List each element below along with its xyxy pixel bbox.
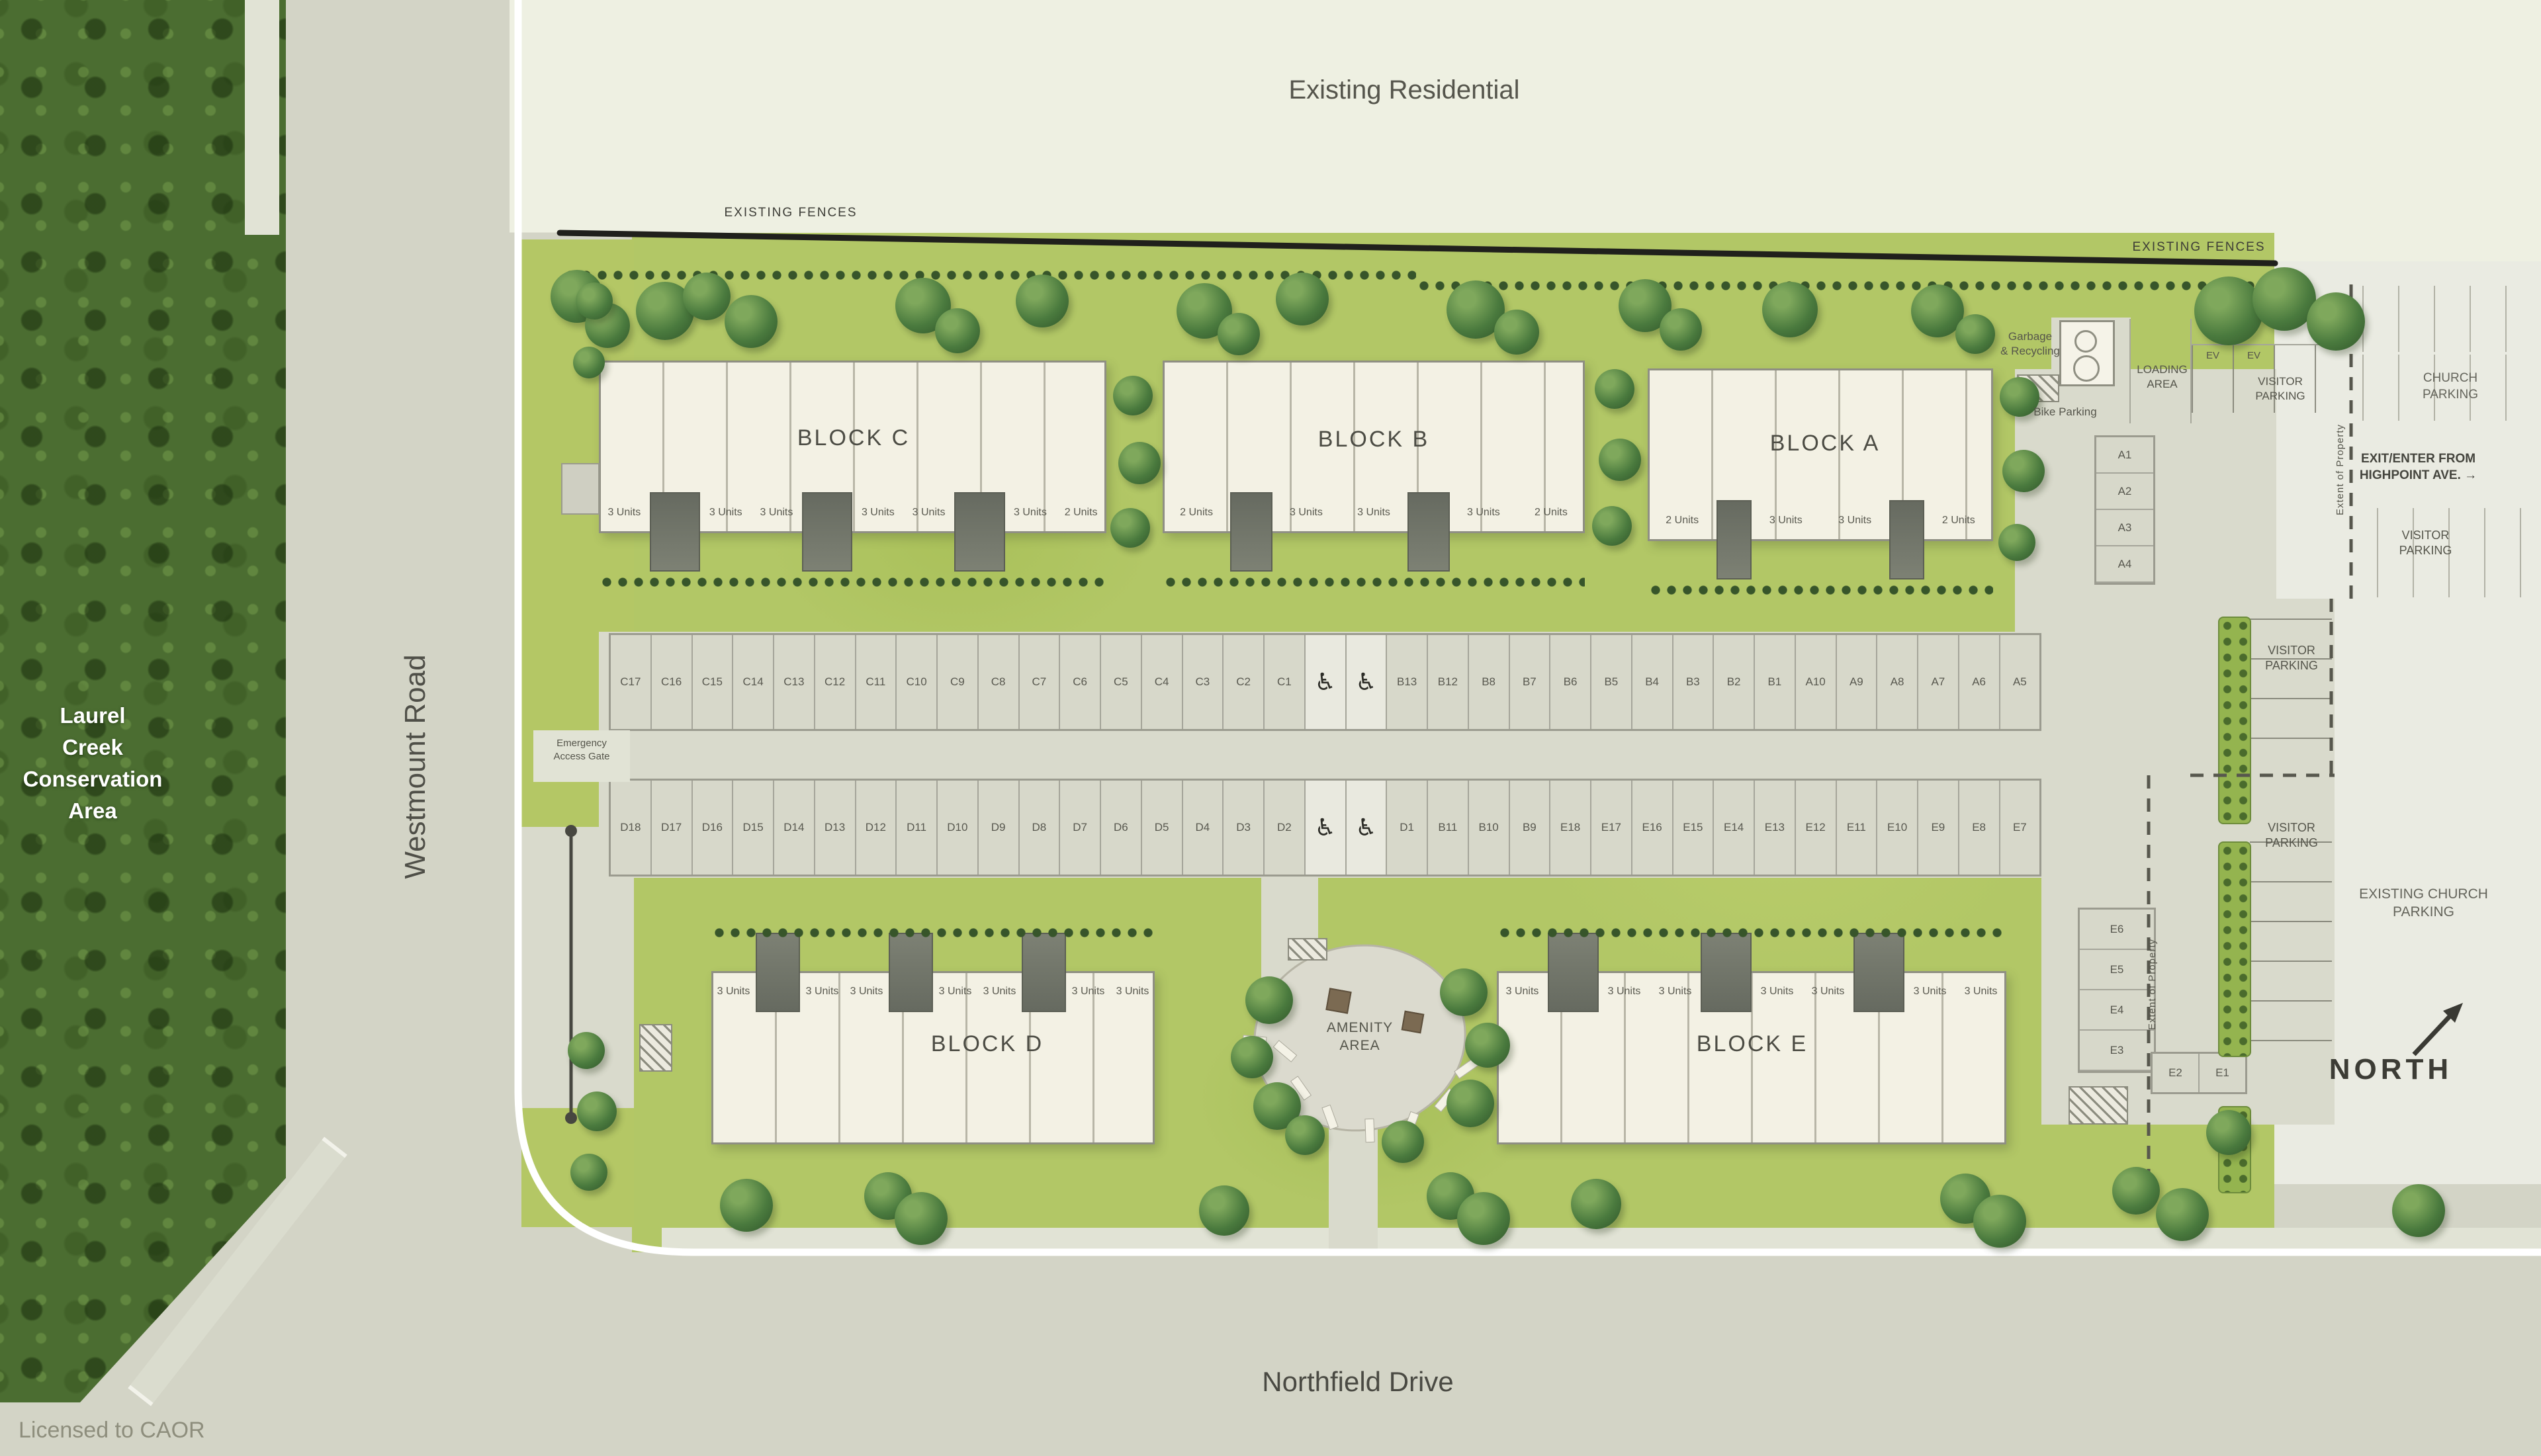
stall-number-label: E9 xyxy=(1931,821,1945,834)
garage-porch xyxy=(802,492,853,572)
northfield-drive-label: Northfield Drive xyxy=(1226,1364,1490,1400)
north-label: NORTH xyxy=(2315,1050,2467,1088)
tree xyxy=(1465,1023,1510,1068)
parking-stall: D3 xyxy=(1224,781,1265,875)
stall-number-label: D6 xyxy=(1114,821,1128,834)
garage-porch xyxy=(1716,500,1751,579)
conservation-area-label: Laurel Creek Conservation Area xyxy=(13,700,172,826)
stall-number-label: D8 xyxy=(1032,821,1047,834)
parking-stall: E12 xyxy=(1796,781,1837,875)
tree xyxy=(1276,273,1329,325)
unit-count-label: 3 Units xyxy=(933,971,977,1012)
accessible-parking-icon: ♿ xyxy=(1355,814,1376,841)
stall-number-label: A2 xyxy=(2118,485,2132,498)
unit-count-label: 3 Units xyxy=(977,971,1022,1012)
parking-stall: E14 xyxy=(1714,781,1755,875)
block-b-label: BLOCK B xyxy=(1274,425,1473,454)
garbage-bin-icon xyxy=(2073,355,2100,382)
tree xyxy=(2206,1110,2251,1155)
parking-stall: B5 xyxy=(1591,635,1632,729)
parking-stall: D13 xyxy=(815,781,856,875)
garage-porch xyxy=(1407,492,1450,572)
tree xyxy=(1571,1179,1621,1229)
parking-stall: E1 xyxy=(2200,1054,2245,1092)
unit-count-label: 3 Units xyxy=(599,492,650,533)
stall-number-label: D10 xyxy=(947,821,967,834)
parking-stall: E9 xyxy=(1918,781,1959,875)
parking-stall: B8 xyxy=(1469,635,1510,729)
parking-stall: C5 xyxy=(1101,635,1142,729)
block-a-label: BLOCK A xyxy=(1726,429,1924,458)
parking-stall: A2 xyxy=(2096,474,2153,510)
tree xyxy=(725,295,778,348)
accessible-parking-icon: ♿ xyxy=(1355,669,1376,696)
parking-stall: C11 xyxy=(856,635,897,729)
licensed-watermark: Licensed to CAOR xyxy=(19,1416,296,1445)
westmount-road-label: Westmount Road xyxy=(400,621,431,912)
unit-count-label: 3 Units xyxy=(1450,492,1517,533)
garage-porch xyxy=(1889,500,1924,579)
stall-number-label: D14 xyxy=(783,821,804,834)
tree xyxy=(1592,506,1632,546)
stall-number-label: C3 xyxy=(1196,675,1210,689)
parking-stall: D16 xyxy=(693,781,734,875)
stall-number-label: C15 xyxy=(702,675,723,689)
stall-number-label: C2 xyxy=(1236,675,1251,689)
stall-number-label: C4 xyxy=(1155,675,1169,689)
unit-count-label: 3 Units xyxy=(1497,971,1548,1012)
stall-number-label: E12 xyxy=(1806,821,1826,834)
parking-stall: E7 xyxy=(2000,781,2040,875)
stall-number-label: E11 xyxy=(1847,821,1866,834)
parking-stall: E8 xyxy=(1959,781,2000,875)
stall-number-label: A7 xyxy=(1931,675,1945,689)
unit-count-label: 3 Units xyxy=(903,492,954,533)
stall-number-label: E5 xyxy=(2110,963,2124,976)
tree xyxy=(683,273,731,320)
parking-stall: B13 xyxy=(1387,635,1428,729)
stall-number-label: D16 xyxy=(702,821,723,834)
stall-number-label: D3 xyxy=(1236,821,1251,834)
parking-stall: B3 xyxy=(1673,635,1715,729)
stall-number-label: A10 xyxy=(1806,675,1826,689)
stall-number-label: B5 xyxy=(1604,675,1618,689)
unit-count-label: 3 Units xyxy=(852,492,903,533)
parking-row-south: D18D17D16D15D14D13D12D11D10D9D8D7D6D5D4D… xyxy=(609,779,2041,877)
parking-stall: A4 xyxy=(2096,546,2153,583)
unit-label-strip: 3 Units3 Units3 Units3 Units3 Units3 Uni… xyxy=(1497,971,2006,1012)
utility-pad xyxy=(561,463,600,515)
garage-porch xyxy=(1230,492,1272,572)
extent-of-property-label-south: Extent of Property xyxy=(2143,918,2162,1050)
stall-number-label: E1 xyxy=(2215,1066,2229,1080)
unit-count-label: 3 Units xyxy=(1272,492,1340,533)
exit-enter-highpoint-label: EXIT/ENTER FROM HIGHPOINT AVE. → xyxy=(2350,451,2486,484)
parking-stall: C6 xyxy=(1060,635,1101,729)
stall-number-label: D7 xyxy=(1073,821,1087,834)
unit-label-strip: 3 Units3 Units3 Units3 Units3 Units3 Uni… xyxy=(711,971,1155,1012)
parking-stall: D7 xyxy=(1060,781,1101,875)
parking-stall: D8 xyxy=(1020,781,1061,875)
westmount-road-text: Westmount Road xyxy=(396,654,434,878)
amenity-area-label: AMENITY AREA xyxy=(1314,1019,1406,1055)
stall-number-label: B2 xyxy=(1727,675,1741,689)
tree xyxy=(2194,277,2263,345)
parking-pair-e: E2E1 xyxy=(2151,1052,2247,1094)
stall-number-label: C9 xyxy=(950,675,965,689)
bike-rack-amenity-icon xyxy=(1288,938,1327,961)
stall-number-label: B3 xyxy=(1686,675,1700,689)
stall-number-label: E17 xyxy=(1601,821,1621,834)
site-plan-map: BLOCK C BLOCK B BLOCK A BLOCK D BLOCK E … xyxy=(0,0,2541,1456)
stall-number-label: A1 xyxy=(2118,449,2132,462)
shrub-hedge xyxy=(1163,574,1585,590)
parking-stall: D10 xyxy=(938,781,979,875)
tree xyxy=(573,347,605,378)
tree xyxy=(935,308,980,353)
block-c-label: BLOCK C xyxy=(754,423,953,452)
existing-residential-label: Existing Residential xyxy=(1272,73,1537,107)
parking-stall: A9 xyxy=(1837,635,1878,729)
tree xyxy=(568,1032,605,1069)
stall-number-label: C8 xyxy=(991,675,1006,689)
unit-count-label: 3 Units xyxy=(1005,492,1056,533)
parking-stall: E2 xyxy=(2153,1054,2200,1092)
parking-stall: C12 xyxy=(815,635,856,729)
unit-count-label: 3 Units xyxy=(751,492,802,533)
stall-number-label: E7 xyxy=(2013,821,2027,834)
unit-count-label: 3 Units xyxy=(1752,500,1820,541)
stall-number-label: E16 xyxy=(1642,821,1662,834)
parking-stall: C8 xyxy=(979,635,1020,729)
tree xyxy=(1973,1195,2026,1248)
parking-stall: A7 xyxy=(1918,635,1959,729)
tree xyxy=(1016,275,1069,327)
parking-stall: E16 xyxy=(1632,781,1673,875)
stall-number-label: B7 xyxy=(1523,675,1537,689)
parking-stall: D14 xyxy=(774,781,815,875)
unit-count-label: 3 Units xyxy=(1904,971,1955,1012)
stall-number-label: E13 xyxy=(1765,821,1785,834)
tree xyxy=(1440,968,1488,1016)
unit-count-label: 3 Units xyxy=(1803,971,1853,1012)
parking-stall: D11 xyxy=(897,781,938,875)
parking-stall: B6 xyxy=(1550,635,1591,729)
loading-area-label: LOADING AREA xyxy=(2131,363,2194,392)
stall-number-label: A8 xyxy=(1891,675,1904,689)
ev-stall-label-2: EV xyxy=(2238,349,2270,363)
visitor-stalls-mid-lower xyxy=(2250,841,2332,1053)
visitor-parking-label-mid-lower: VISITOR PARKING xyxy=(2254,820,2329,851)
unit-label-strip: 3 Units3 Units3 Units3 Units3 Units3 Uni… xyxy=(599,492,1106,533)
stall-number-label: B10 xyxy=(1479,821,1499,834)
garage-porch xyxy=(1853,933,1904,1012)
garage-porch xyxy=(650,492,701,572)
ev-stall-label-1: EV xyxy=(2197,349,2229,363)
tree xyxy=(577,1092,617,1131)
shrub-hedge xyxy=(711,925,1155,941)
parking-stall: D6 xyxy=(1101,781,1142,875)
stall-number-label: A9 xyxy=(1850,675,1863,689)
parking-stall: B9 xyxy=(1510,781,1551,875)
tree xyxy=(1382,1121,1424,1163)
tree xyxy=(1595,369,1634,409)
garage-porch xyxy=(889,933,933,1012)
forest-path xyxy=(245,0,279,235)
stall-number-label: A6 xyxy=(1972,675,1986,689)
existing-fences-label-east: EXISTING FENCES xyxy=(2123,239,2275,256)
stall-number-label: D11 xyxy=(907,821,926,834)
stall-number-label: A3 xyxy=(2118,521,2132,535)
stall-number-label: D2 xyxy=(1277,821,1292,834)
parking-stall: E11 xyxy=(1837,781,1878,875)
extent-of-property-label-east: Extent of Property xyxy=(2331,404,2350,536)
tree xyxy=(2002,450,2045,492)
stall-number-label: D15 xyxy=(743,821,764,834)
mailbox-kiosk-icon xyxy=(639,1024,672,1072)
tree xyxy=(570,1154,607,1191)
tree xyxy=(1998,524,2035,561)
parking-stall: A6 xyxy=(1959,635,2000,729)
garage-porch xyxy=(954,492,1005,572)
bike-rack-south-icon xyxy=(2069,1086,2128,1125)
block-e-label: BLOCK E xyxy=(1653,1029,1851,1058)
existing-residential-area xyxy=(510,0,2541,267)
tree xyxy=(1218,313,1260,355)
unit-count-label: 2 Units xyxy=(1055,492,1106,533)
stall-number-label: D17 xyxy=(661,821,682,834)
garage-porch xyxy=(756,933,800,1012)
accessible-parking-stall: ♿ xyxy=(1347,781,1388,875)
parking-stall: C9 xyxy=(938,635,979,729)
stall-number-label: C11 xyxy=(866,675,885,689)
unit-count-label: 3 Units xyxy=(1650,971,1701,1012)
existing-church-parking-label: EXISTING CHURCH PARKING xyxy=(2346,885,2501,921)
parking-stall: E15 xyxy=(1673,781,1715,875)
unit-count-label: 3 Units xyxy=(1820,500,1889,541)
tree xyxy=(576,282,613,320)
parking-stall: B4 xyxy=(1632,635,1673,729)
stall-number-label: C10 xyxy=(907,675,927,689)
parking-stall: E18 xyxy=(1550,781,1591,875)
shrub-hedge xyxy=(599,574,1106,590)
accessible-parking-stall: ♿ xyxy=(1347,635,1388,729)
parking-stall: D4 xyxy=(1183,781,1224,875)
garage-porch xyxy=(1548,933,1599,1012)
stall-number-label: D5 xyxy=(1155,821,1169,834)
unit-count-label: 2 Units xyxy=(1517,492,1585,533)
existing-fences-label-west: EXISTING FENCES xyxy=(715,205,867,222)
parking-stall: C2 xyxy=(1224,635,1265,729)
stall-number-label: E2 xyxy=(2168,1066,2182,1080)
landscape-strip xyxy=(2218,617,2251,824)
tree xyxy=(2156,1188,2209,1241)
unit-count-label: 2 Units xyxy=(1163,492,1230,533)
parking-stall: C1 xyxy=(1265,635,1306,729)
parking-stall: B1 xyxy=(1755,635,1796,729)
parking-stall: B10 xyxy=(1469,781,1510,875)
stall-number-label: C5 xyxy=(1114,675,1128,689)
parking-stall: C17 xyxy=(611,635,652,729)
stall-number-label: D18 xyxy=(620,821,641,834)
bike-parking-label: Bike Parking xyxy=(2009,405,2121,419)
parking-stall: D12 xyxy=(856,781,897,875)
parking-stall: A5 xyxy=(2000,635,2040,729)
shrub-hedge xyxy=(1416,278,2274,294)
stall-number-label: E8 xyxy=(1972,821,1986,834)
stall-number-label: E4 xyxy=(2110,1004,2124,1017)
parking-stall: E17 xyxy=(1591,781,1632,875)
parking-stall: D5 xyxy=(1142,781,1183,875)
parking-stall: C4 xyxy=(1142,635,1183,729)
parking-stall: A3 xyxy=(2096,510,2153,546)
stall-number-label: D13 xyxy=(825,821,845,834)
bench xyxy=(1364,1119,1374,1142)
parking-stall: D17 xyxy=(652,781,693,875)
unit-count-label: 3 Units xyxy=(844,971,889,1012)
tree xyxy=(720,1179,773,1232)
stall-number-label: D1 xyxy=(1400,821,1414,834)
unit-count-label: 2 Units xyxy=(1924,500,1993,541)
tree xyxy=(2307,292,2365,351)
parking-stall: B7 xyxy=(1510,635,1551,729)
visitor-stalls-mid-upper xyxy=(2250,619,2332,776)
shrub-hedge xyxy=(1648,582,1993,598)
parking-stall: B2 xyxy=(1714,635,1755,729)
tree xyxy=(1231,1036,1273,1078)
stall-number-label: C13 xyxy=(783,675,804,689)
visitor-parking-label-top: VISITOR PARKING xyxy=(2247,374,2313,404)
tree xyxy=(1457,1192,1510,1245)
stall-number-label: C16 xyxy=(661,675,682,689)
parking-stall: C7 xyxy=(1020,635,1061,729)
stall-number-label: B8 xyxy=(1482,675,1495,689)
stall-number-label: B4 xyxy=(1645,675,1659,689)
stall-number-label: C14 xyxy=(743,675,764,689)
tree xyxy=(1762,282,1818,337)
parking-stall: E10 xyxy=(1877,781,1918,875)
stall-number-label: D12 xyxy=(866,821,886,834)
tree xyxy=(1285,1115,1325,1155)
stall-number-label: C12 xyxy=(825,675,845,689)
parking-stall: C10 xyxy=(897,635,938,729)
parking-stall: D1 xyxy=(1387,781,1428,875)
unit-count-label: 3 Units xyxy=(711,971,756,1012)
parking-stall: B12 xyxy=(1428,635,1469,729)
parking-stall: C3 xyxy=(1183,635,1224,729)
parking-stall: D2 xyxy=(1265,781,1306,875)
stall-number-label: A4 xyxy=(2118,558,2132,571)
garage-porch xyxy=(1022,933,1066,1012)
tree xyxy=(1113,376,1153,415)
stall-number-label: B9 xyxy=(1523,821,1537,834)
visitor-parking-label-highpoint: VISITOR PARKING xyxy=(2387,528,2464,559)
unit-count-label: 3 Units xyxy=(800,971,844,1012)
picnic-table xyxy=(1325,988,1351,1013)
church-stalls-upper xyxy=(2362,286,2540,352)
tree xyxy=(2392,1184,2445,1237)
tree xyxy=(1447,1080,1494,1127)
stall-number-label: E10 xyxy=(1887,821,1907,834)
garage-porch xyxy=(1701,933,1752,1012)
stall-number-label: E14 xyxy=(1724,821,1744,834)
unit-count-label: 3 Units xyxy=(700,492,751,533)
parking-stall: C16 xyxy=(652,635,693,729)
tree xyxy=(1245,976,1293,1024)
stall-number-label: B12 xyxy=(1438,675,1458,689)
tree xyxy=(1199,1185,1249,1236)
accessible-parking-icon: ♿ xyxy=(1314,669,1335,696)
unit-label-strip: 2 Units3 Units3 Units3 Units2 Units xyxy=(1163,492,1585,533)
parking-stall: B11 xyxy=(1428,781,1469,875)
tree xyxy=(1660,308,1702,351)
stall-number-label: E3 xyxy=(2110,1044,2124,1057)
tree xyxy=(2112,1167,2160,1215)
stall-number-label: D9 xyxy=(991,821,1006,834)
stall-number-label: E18 xyxy=(1560,821,1580,834)
parking-stall: A10 xyxy=(1796,635,1837,729)
tree xyxy=(1494,310,1539,355)
unit-count-label: 3 Units xyxy=(1752,971,1803,1012)
unit-count-label: 2 Units xyxy=(1648,500,1716,541)
parking-stall: C15 xyxy=(693,635,734,729)
stall-number-label: D4 xyxy=(1196,821,1210,834)
parking-stall: C14 xyxy=(733,635,774,729)
block-d-label: BLOCK D xyxy=(888,1029,1087,1058)
parking-stall: E13 xyxy=(1755,781,1796,875)
parking-row-north: C17C16C15C14C13C12C11C10C9C8C7C6C5C4C3C2… xyxy=(609,633,2041,731)
parking-stall: D15 xyxy=(733,781,774,875)
unit-count-label: 3 Units xyxy=(1955,971,2006,1012)
tree xyxy=(1599,439,1641,481)
stall-number-label: E6 xyxy=(2110,923,2124,936)
unit-count-label: 3 Units xyxy=(1599,971,1650,1012)
emergency-access-gate-label: Emergency Access Gate xyxy=(537,737,626,763)
shrub-hedge xyxy=(1497,925,2006,941)
parking-stall: C13 xyxy=(774,635,815,729)
stall-number-label: B11 xyxy=(1438,821,1457,834)
stall-number-label: A5 xyxy=(2013,675,2027,689)
visitor-parking-label-mid-upper: VISITOR PARKING xyxy=(2254,643,2329,674)
stall-number-label: B13 xyxy=(1397,675,1417,689)
stall-number-label: C17 xyxy=(620,675,641,689)
extent-south-text: Extent of Property xyxy=(2146,939,2159,1030)
church-parking-label: CHURCH PARKING xyxy=(2407,370,2493,403)
parking-stall: D9 xyxy=(979,781,1020,875)
stall-number-label: E15 xyxy=(1683,821,1703,834)
landscape-strip xyxy=(2218,841,2251,1057)
stall-number-label: B6 xyxy=(1564,675,1578,689)
accessible-parking-icon: ♿ xyxy=(1314,814,1335,841)
unit-count-label: 3 Units xyxy=(1110,971,1155,1012)
stall-number-label: B1 xyxy=(1767,675,1781,689)
stall-number-label: C6 xyxy=(1073,675,1087,689)
unit-count-label: 3 Units xyxy=(1066,971,1110,1012)
unit-label-strip: 2 Units3 Units3 Units2 Units xyxy=(1648,500,1993,541)
garbage-recycling-label: Garbage & Recycling xyxy=(1977,329,2083,359)
tree xyxy=(895,1192,948,1245)
stall-number-label: C7 xyxy=(1032,675,1047,689)
tree xyxy=(1110,508,1150,548)
parking-stall: A1 xyxy=(2096,437,2153,474)
accessible-parking-stall: ♿ xyxy=(1306,635,1347,729)
tree xyxy=(1118,442,1161,484)
parking-column-a: A1A2A3A4 xyxy=(2094,435,2155,585)
unit-count-label: 3 Units xyxy=(1340,492,1407,533)
extent-east-text: Extent of Property xyxy=(2334,424,2347,515)
stall-number-label: C1 xyxy=(1277,675,1292,689)
parking-stall: A8 xyxy=(1877,635,1918,729)
